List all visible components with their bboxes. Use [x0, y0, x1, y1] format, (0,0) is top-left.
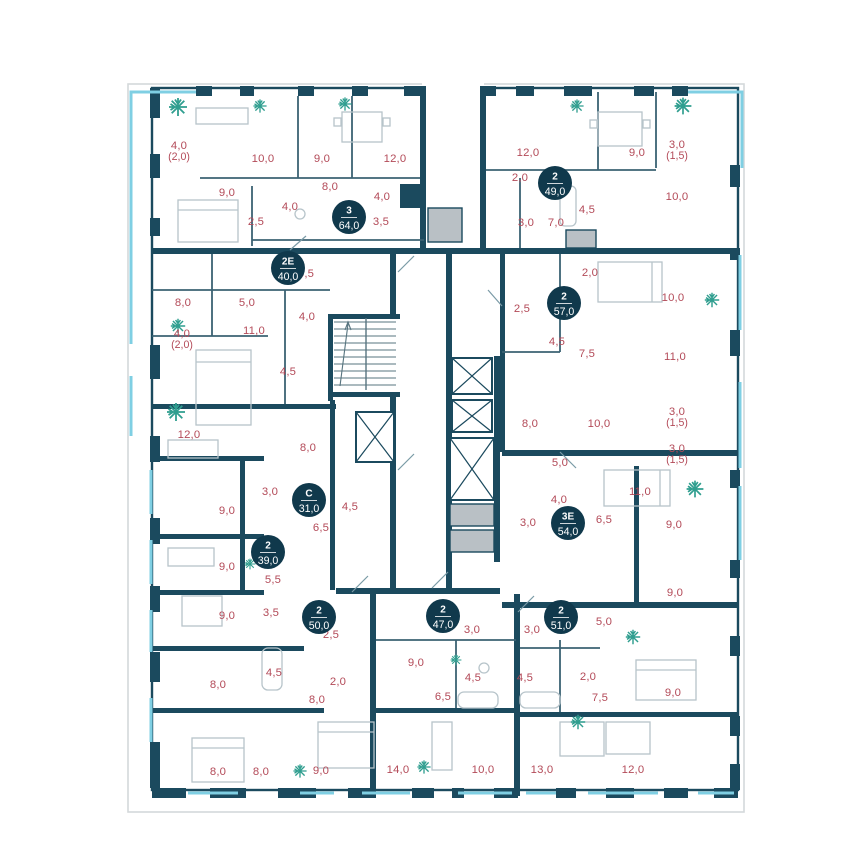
room-area-value: 2,0 [512, 172, 528, 184]
room-area-label: 4,5 [465, 672, 481, 684]
room-area-label: 8,0 [210, 766, 226, 778]
room-area-label: 3,0 [524, 624, 540, 636]
floor-plan: 4,0(2,0)10,09,012,08,09,04,04,02,53,55,5… [0, 0, 864, 864]
unit-type: 2 [558, 606, 564, 617]
room-area-label: 8,0 [175, 297, 191, 309]
room-area-label: 11,0 [629, 486, 651, 498]
room-area-value: 2,0 [580, 671, 596, 683]
room-area-label: 12,0 [384, 153, 407, 165]
room-area-label: 4,0 [299, 311, 315, 323]
room-area-value: 4,0 [551, 494, 567, 506]
unit-type: 2 [561, 292, 567, 303]
room-area-value: 3,0 [524, 624, 540, 636]
room-area-label: 13,0 [531, 764, 554, 776]
room-area-value: 9,0 [219, 610, 235, 622]
room-area-value: 7,5 [592, 692, 608, 704]
unit-area: 47,0 [433, 619, 454, 631]
room-area-label: 8,0 [322, 181, 338, 193]
room-area-value: 3,0 [518, 217, 534, 229]
room-area-label: 3,0(1,5) [666, 406, 688, 429]
elevator-icon [356, 412, 394, 462]
room-area-value: 9,0 [665, 687, 681, 699]
room-area-value: 9,0 [314, 153, 330, 165]
room-area-label: 10,0 [252, 153, 275, 165]
room-area-label: 7,5 [579, 348, 595, 360]
room-area-value: 4,5 [342, 501, 358, 513]
room-area-value: 4,5 [266, 667, 282, 679]
room-area-value: 12,0 [178, 429, 201, 441]
room-area-value: 11,0 [629, 486, 651, 498]
room-area-label: 10,0 [472, 764, 495, 776]
room-area-label: 3,5 [263, 607, 279, 619]
room-area-subvalue: (1,5) [666, 454, 688, 466]
room-area-value: 2,5 [514, 303, 530, 315]
room-area-value: 3,0 [464, 624, 480, 636]
room-area-value: 7,5 [579, 348, 595, 360]
room-area-label: 2,0 [582, 267, 598, 279]
room-area-label: 9,0 [219, 610, 235, 622]
room-area-label: 6,5 [435, 691, 451, 703]
unit-area: 50,0 [309, 620, 330, 632]
room-area-label: 9,0 [666, 519, 682, 531]
room-area-label: 2,5 [248, 216, 264, 228]
unit-badge[interactable]: 364,0 [332, 200, 366, 234]
room-area-label: 5,0 [552, 457, 568, 469]
unit-area: 39,0 [258, 555, 279, 567]
room-area-value: 8,0 [253, 766, 269, 778]
room-area-label: 9,0 [219, 505, 235, 517]
room-area-subvalue: (2,0) [171, 339, 193, 351]
unit-type: 2 [440, 605, 446, 616]
room-area-label: 3,0 [464, 624, 480, 636]
room-area-label: 4,5 [342, 501, 358, 513]
room-area-value: 8,0 [175, 297, 191, 309]
room-area-value: 9,0 [667, 587, 683, 599]
unit-area: 64,0 [339, 220, 360, 232]
room-area-value: 14,0 [387, 764, 410, 776]
room-area-value: 8,0 [300, 442, 316, 454]
floor-plan-page: 4,0(2,0)10,09,012,08,09,04,04,02,53,55,5… [0, 0, 864, 864]
unit-badge[interactable]: С31,0 [292, 483, 326, 517]
room-area-label: 9,0 [665, 687, 681, 699]
room-area-value: 6,5 [596, 514, 612, 526]
room-area-label: 11,0 [243, 325, 265, 337]
room-area-value: 13,0 [531, 764, 554, 776]
plant-icon [417, 760, 430, 773]
unit-type: С [305, 489, 312, 500]
room-area-value: 11,0 [243, 325, 265, 337]
room-area-label: 5,0 [239, 297, 255, 309]
room-area-label: 12,0 [517, 147, 540, 159]
room-area-value: 3,5 [373, 216, 389, 228]
room-area-label: 9,0 [667, 587, 683, 599]
room-area-label: 4,5 [579, 204, 595, 216]
room-area-value: 6,5 [435, 691, 451, 703]
room-area-value: 11,0 [664, 351, 686, 363]
room-area-value: 4,5 [465, 672, 481, 684]
room-area-value: 9,0 [666, 519, 682, 531]
room-area-value: 4,0 [282, 201, 298, 213]
room-area-label: 6,5 [313, 522, 329, 534]
room-area-label: 3,0 [262, 486, 278, 498]
room-area-value: 4,5 [579, 204, 595, 216]
room-area-value: 4,0 [299, 311, 315, 323]
unit-area: 40,0 [278, 271, 299, 283]
room-area-value: 5,0 [596, 616, 612, 628]
unit-type: 3 [346, 206, 352, 217]
room-area-value: 12,0 [517, 147, 540, 159]
room-area-value: 10,0 [252, 153, 275, 165]
room-area-label: 4,5 [266, 667, 282, 679]
room-area-label: 10,0 [588, 418, 611, 430]
room-area-value: 8,0 [210, 766, 226, 778]
room-area-value: 9,0 [219, 561, 235, 573]
room-area-value: 10,0 [472, 764, 495, 776]
unit-badge[interactable]: 249,0 [538, 166, 572, 200]
elevator-icon [452, 400, 492, 432]
room-area-label: 4,5 [280, 366, 296, 378]
room-area-label: 8,0 [210, 679, 226, 691]
room-area-label: 14,0 [387, 764, 410, 776]
room-area-value: 4,5 [517, 672, 533, 684]
room-area-value: 12,0 [622, 764, 645, 776]
plant-icon [293, 764, 306, 777]
room-area-label: 2,0 [330, 676, 346, 688]
room-area-value: 4,5 [549, 336, 565, 348]
room-area-label: 9,0 [629, 147, 645, 159]
room-area-value: 2,5 [248, 216, 264, 228]
room-area-label: 12,0 [178, 429, 201, 441]
unit-badge[interactable]: 251,0 [544, 600, 578, 634]
room-area-label: 4,0(2,0) [168, 140, 190, 163]
room-area-label: 3,0 [518, 217, 534, 229]
plant-icon [167, 403, 185, 421]
room-area-label: 8,0 [309, 694, 325, 706]
room-area-value: 6,5 [313, 522, 329, 534]
room-area-value: 3,5 [263, 607, 279, 619]
elevator-icon [452, 358, 492, 394]
room-area-label: 4,0 [374, 191, 390, 203]
room-area-label: 3,0(1,5) [666, 139, 688, 162]
room-area-value: 4,5 [280, 366, 296, 378]
unit-badge[interactable]: 250,0 [302, 600, 336, 634]
room-area-value: 2,0 [582, 267, 598, 279]
room-area-label: 7,0 [548, 217, 564, 229]
room-area-value: 8,0 [309, 694, 325, 706]
room-area-value: 9,0 [219, 187, 235, 199]
room-area-label: 8,0 [253, 766, 269, 778]
room-area-label: 2,0 [512, 172, 528, 184]
room-area-value: 9,0 [629, 147, 645, 159]
room-area-value: 8,0 [210, 679, 226, 691]
room-area-value: 5,0 [552, 457, 568, 469]
room-area-subvalue: (1,5) [666, 417, 688, 429]
unit-badge[interactable]: 257,0 [547, 286, 581, 320]
room-area-value: 4,0 [374, 191, 390, 203]
room-area-label: 4,0 [551, 494, 567, 506]
room-area-value: 8,0 [322, 181, 338, 193]
unit-area: 49,0 [545, 186, 566, 198]
room-area-label: 10,0 [662, 292, 685, 304]
room-area-value: 3,0 [520, 517, 536, 529]
room-area-value: 10,0 [666, 191, 689, 203]
unit-badge[interactable]: 239,0 [251, 535, 285, 569]
room-area-value: 8,0 [522, 418, 538, 430]
room-area-label: 2,0 [580, 671, 596, 683]
room-area-value: 2,0 [330, 676, 346, 688]
room-area-label: 4,0 [282, 201, 298, 213]
room-area-label: 9,0 [408, 657, 424, 669]
unit-type: 3Е [562, 512, 575, 523]
room-area-label: 5,0 [596, 616, 612, 628]
room-area-label: 6,5 [596, 514, 612, 526]
unit-badge[interactable]: 247,0 [426, 599, 460, 633]
room-area-value: 5,0 [239, 297, 255, 309]
room-area-label: 8,0 [300, 442, 316, 454]
unit-type: 2 [552, 172, 558, 183]
room-area-label: 7,5 [592, 692, 608, 704]
room-area-value: 3,0 [262, 486, 278, 498]
unit-area: 51,0 [551, 620, 572, 632]
room-area-subvalue: (2,0) [168, 151, 190, 163]
room-area-label: 4,5 [517, 672, 533, 684]
room-area-value: 10,0 [588, 418, 611, 430]
elevator-icon [450, 438, 494, 500]
unit-type: 2 [316, 606, 322, 617]
unit-badge[interactable]: 3Е54,0 [551, 506, 585, 540]
room-area-value: 10,0 [662, 292, 685, 304]
room-area-label: 8,0 [522, 418, 538, 430]
room-area-label: 2,5 [514, 303, 530, 315]
room-area-label: 9,0 [219, 561, 235, 573]
room-area-value: 7,0 [548, 217, 564, 229]
room-area-label: 9,0 [219, 187, 235, 199]
room-area-value: 5,5 [265, 574, 281, 586]
room-area-value: 9,0 [219, 505, 235, 517]
room-area-label: 4,5 [549, 336, 565, 348]
room-area-subvalue: (1,5) [666, 150, 688, 162]
room-area-label: 9,0 [313, 765, 329, 777]
room-area-label: 4,0(2,0) [171, 328, 193, 351]
plant-icon [338, 97, 351, 110]
unit-type: 2Е [282, 257, 295, 268]
room-area-label: 9,0 [314, 153, 330, 165]
room-area-label: 5,5 [265, 574, 281, 586]
room-area-value: 9,0 [313, 765, 329, 777]
unit-area: 57,0 [554, 306, 575, 318]
room-area-label: 3,0 [520, 517, 536, 529]
room-area-label: 11,0 [664, 351, 686, 363]
room-area-label: 3,5 [373, 216, 389, 228]
room-area-value: 12,0 [384, 153, 407, 165]
unit-area: 54,0 [558, 526, 579, 538]
room-area-label: 10,0 [666, 191, 689, 203]
unit-area: 31,0 [299, 503, 320, 515]
room-area-value: 9,0 [408, 657, 424, 669]
unit-badge[interactable]: 2Е40,0 [271, 251, 305, 285]
unit-type: 2 [265, 541, 271, 552]
room-area-label: 3,0(1,5) [666, 443, 688, 466]
plant-icon [570, 99, 583, 112]
room-area-label: 12,0 [622, 764, 645, 776]
